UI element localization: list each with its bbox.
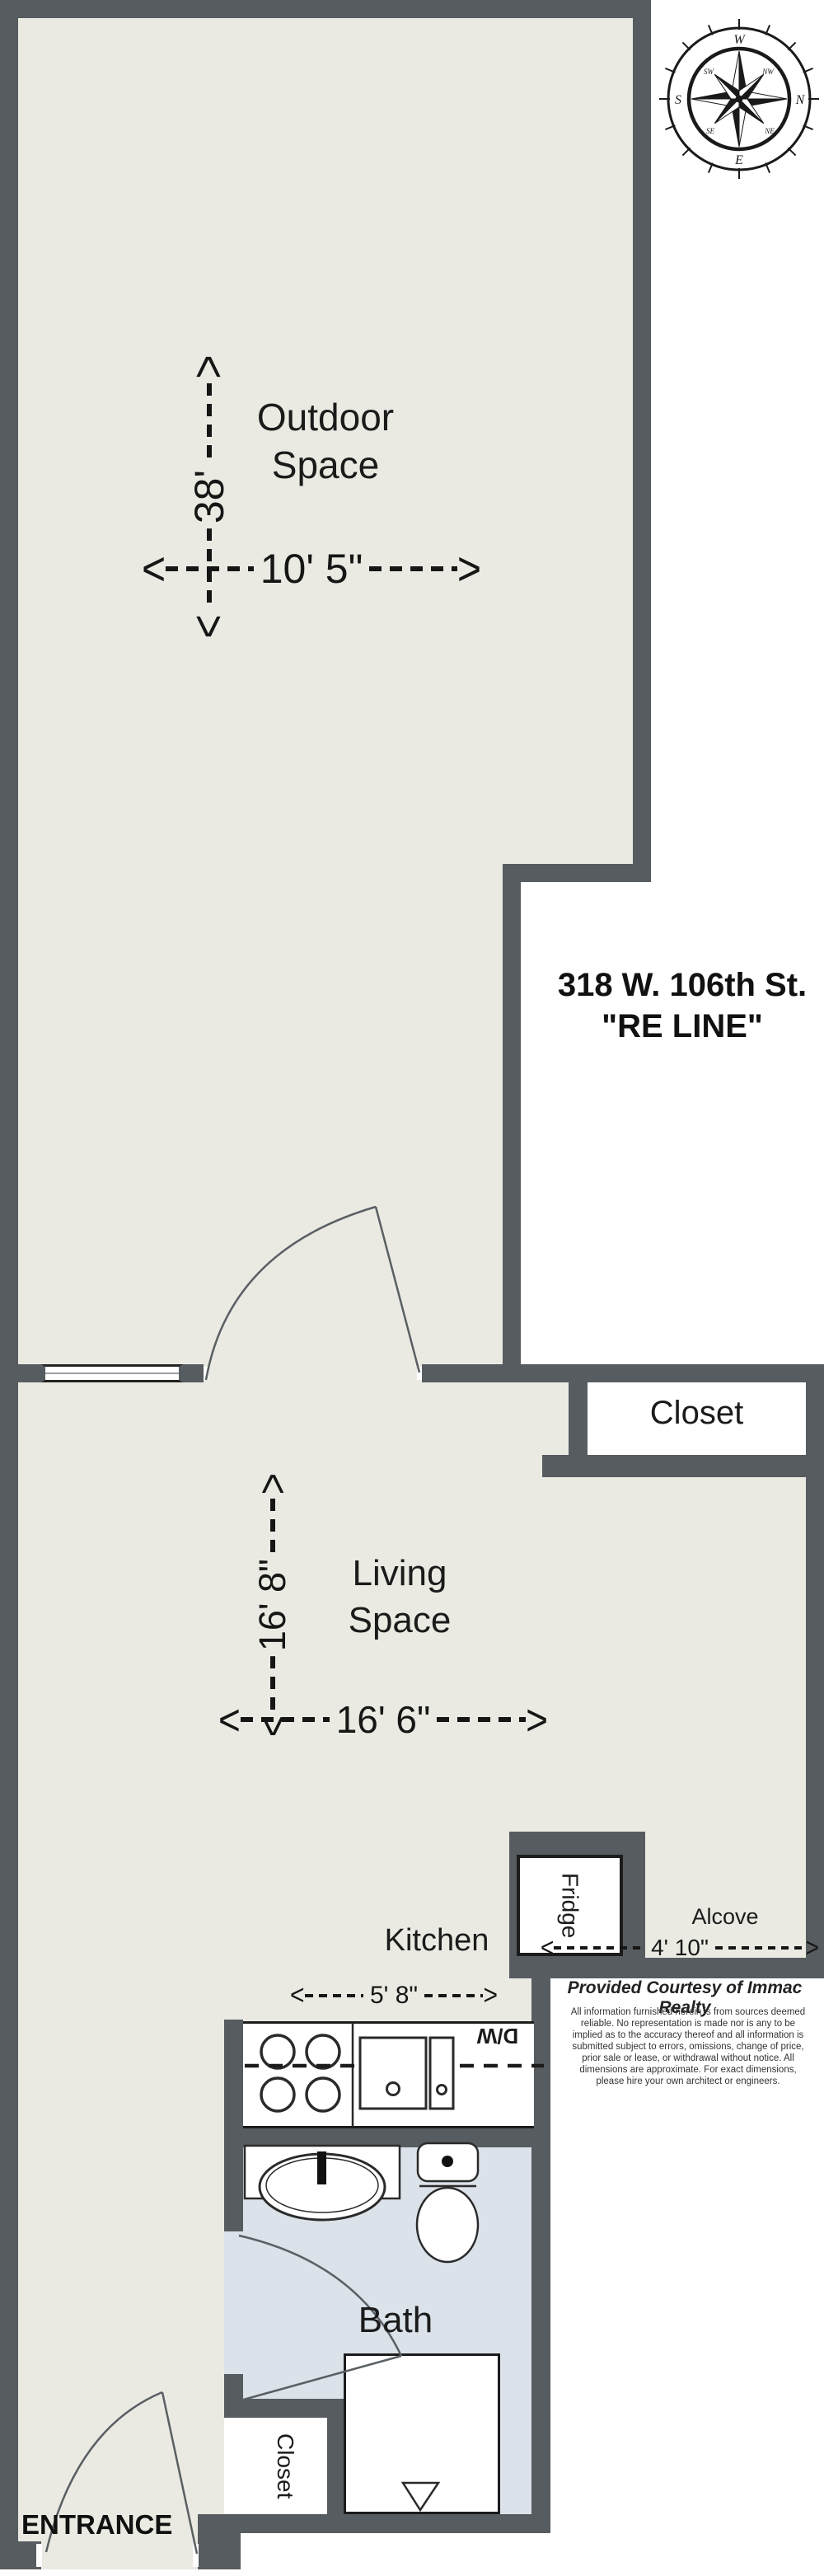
balcony-jamb-right bbox=[417, 1367, 422, 1380]
living-width-dimension: < 16' 6" > bbox=[218, 1698, 548, 1741]
living-width-value: 16' 6" bbox=[330, 1697, 438, 1742]
entrance-jamb-left bbox=[36, 2544, 42, 2567]
balcony-door-opening bbox=[204, 1364, 422, 1382]
dash-line bbox=[270, 1499, 275, 1554]
outdoor-width-dimension: < 10' 5" > bbox=[142, 546, 481, 592]
arrow-up-icon: < bbox=[190, 354, 228, 378]
outdoor-space-floor-lower bbox=[18, 864, 503, 1364]
window bbox=[41, 1364, 183, 1382]
outdoor-space-label-line2: Space bbox=[214, 442, 437, 490]
wall-entrance-bottom-left bbox=[0, 2541, 41, 2569]
disclaimer-text: All information furnished herein is from… bbox=[567, 2006, 809, 2087]
wall-bath-bottom bbox=[224, 2514, 550, 2533]
wall-closet-bottom bbox=[542, 1455, 806, 1477]
wall-living-top-b bbox=[183, 1364, 204, 1382]
dash-line bbox=[166, 566, 254, 571]
dash-line bbox=[241, 1717, 330, 1722]
dash-line bbox=[437, 1717, 526, 1722]
compass-label-right: N bbox=[795, 93, 806, 107]
wall-bath-left-upper bbox=[224, 2147, 243, 2231]
dash-line bbox=[424, 1994, 483, 1997]
kitchen-width-dimension: < 5' 8" > bbox=[290, 1980, 498, 2011]
compass-label-top-left: SW bbox=[704, 68, 715, 76]
arrow-left-icon: < bbox=[142, 545, 166, 593]
kitchen-width-value: 5' 8" bbox=[363, 1982, 424, 2010]
fridge-label: Fridge bbox=[517, 1856, 623, 1954]
arrow-right-icon: > bbox=[483, 1982, 498, 2011]
dash-line bbox=[715, 1946, 806, 1950]
address: 318 W. 106th St. "RE LINE" bbox=[527, 964, 824, 1047]
wall-bath-right bbox=[531, 1978, 550, 2533]
compass-label-top-right: NW bbox=[761, 68, 775, 76]
outdoor-space-label-line1: Outdoor bbox=[214, 394, 437, 442]
arrow-right-icon: > bbox=[526, 1698, 548, 1742]
compass-label-bottom: E bbox=[734, 153, 743, 167]
outdoor-space-label: Outdoor Space bbox=[214, 394, 437, 489]
compass-label-bottom-right: NE bbox=[764, 127, 775, 135]
wall-top bbox=[18, 0, 651, 18]
alcove-label: Alcove bbox=[659, 1904, 791, 1930]
address-line2: "RE LINE" bbox=[527, 1006, 824, 1047]
arrow-right-icon: > bbox=[806, 1935, 819, 1961]
entrance-jamb-right bbox=[193, 2544, 199, 2567]
wall-bath-top bbox=[243, 2128, 550, 2147]
alcove-width-value: 4' 10" bbox=[644, 1935, 715, 1961]
arrow-left-icon: < bbox=[290, 1982, 305, 2011]
shower bbox=[344, 2353, 500, 2514]
wall-living-top-a bbox=[18, 1364, 41, 1382]
living-space-label: Living Space bbox=[288, 1550, 511, 1644]
dash-line bbox=[305, 1994, 363, 1997]
window-mid-line bbox=[45, 1372, 179, 1374]
wall-outdoor-step bbox=[503, 864, 633, 882]
arrow-down-icon: > bbox=[190, 614, 228, 638]
outdoor-width-value: 10' 5" bbox=[254, 545, 370, 593]
compass-rose: W N E S NW NE SE SW bbox=[653, 13, 824, 185]
arrow-right-icon: > bbox=[457, 545, 481, 593]
kitchen-label: Kitchen bbox=[354, 1923, 519, 1959]
floor-plan: W N E S NW NE SE SW < 38' > < 10' 5" > <… bbox=[0, 0, 824, 2576]
wall-right bbox=[806, 1364, 824, 1978]
compass-label-bottom-left: SE bbox=[706, 127, 715, 135]
dash-line bbox=[207, 383, 212, 465]
closet-label: Closet bbox=[588, 1395, 806, 1432]
dishwasher-label: D/W bbox=[468, 2023, 527, 2048]
entrance-corridor-floor bbox=[18, 2128, 224, 2541]
bath-label: Bath bbox=[313, 2300, 478, 2341]
arrow-up-icon: < bbox=[255, 1473, 289, 1494]
compass-label-left: S bbox=[675, 93, 681, 107]
balcony-jamb-left bbox=[204, 1367, 208, 1380]
living-space-label-line2: Space bbox=[288, 1597, 511, 1644]
address-line1: 318 W. 106th St. bbox=[527, 964, 824, 1006]
bath-closet-label: Closet bbox=[243, 2419, 327, 2513]
bath-door-opening bbox=[224, 2231, 243, 2374]
living-space-label-line1: Living bbox=[288, 1550, 511, 1597]
entrance-label: ENTRANCE bbox=[21, 2509, 223, 2541]
compass-label-top: W bbox=[733, 33, 746, 47]
dash-line bbox=[369, 566, 457, 571]
entrance-door-opening bbox=[41, 2541, 198, 2569]
wall-outdoor-right-lower bbox=[503, 882, 521, 1382]
wall-kitchen-left bbox=[224, 2020, 243, 2147]
wall-bath-closet-top bbox=[224, 2399, 346, 2418]
wall-living-top-c bbox=[422, 1364, 824, 1382]
wall-left bbox=[0, 0, 18, 2569]
wall-outdoor-right-upper bbox=[633, 18, 651, 882]
arrow-left-icon: < bbox=[218, 1698, 241, 1742]
